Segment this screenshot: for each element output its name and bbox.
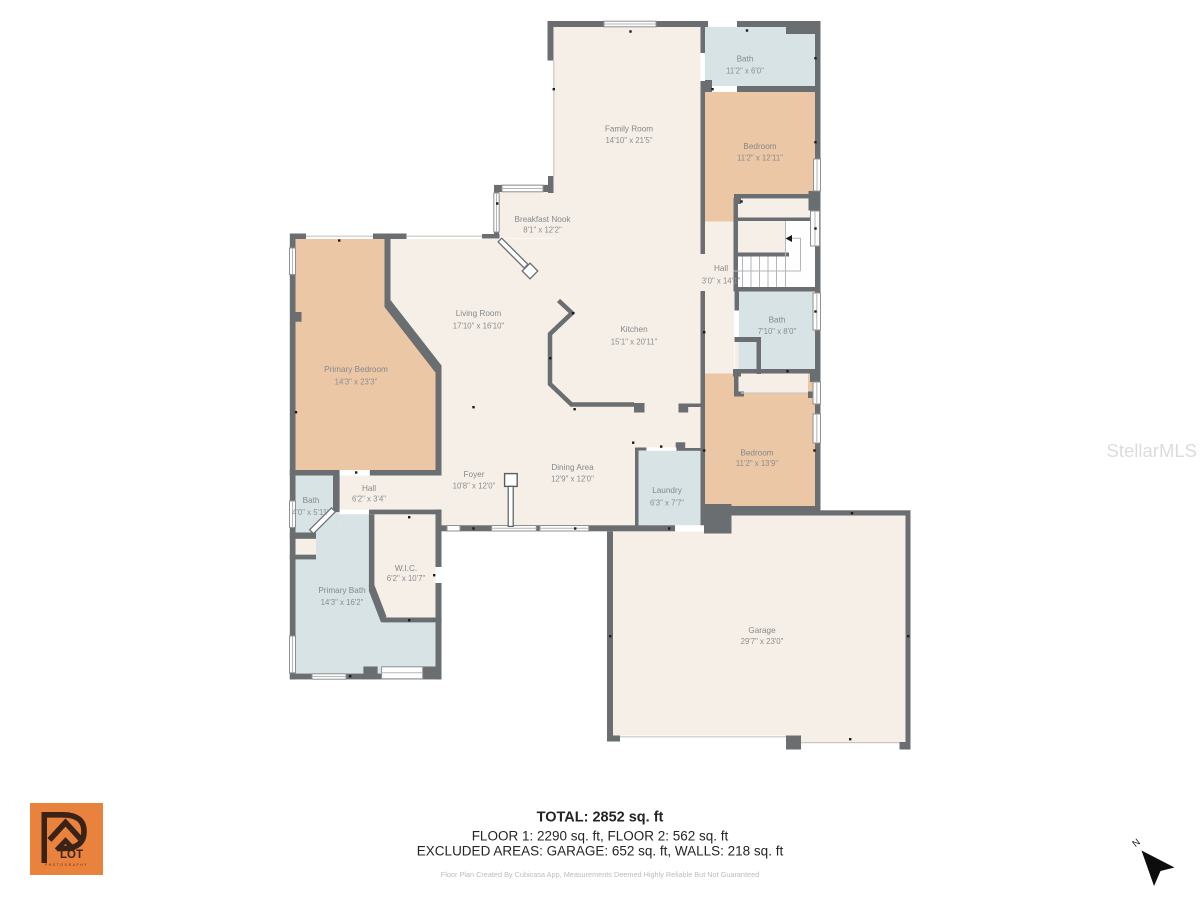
- svg-text:Family Room: Family Room: [605, 125, 653, 134]
- svg-text:Laundry: Laundry: [652, 486, 682, 495]
- svg-text:Primary Bedroom: Primary Bedroom: [324, 365, 388, 374]
- svg-text:29'7" x 23'0": 29'7" x 23'0": [741, 637, 784, 646]
- svg-text:7'10" x 8'0": 7'10" x 8'0": [758, 327, 797, 336]
- svg-text:StellarMLS: StellarMLS: [1107, 440, 1197, 461]
- svg-text:EXCLUDED AREAS: GARAGE: 652 sq: EXCLUDED AREAS: GARAGE: 652 sq. ft, WALL…: [417, 844, 784, 859]
- svg-text:6'3" x 7'7": 6'3" x 7'7": [650, 499, 684, 508]
- svg-text:6'2" x 10'7": 6'2" x 10'7": [387, 574, 426, 583]
- svg-text:6'2" x 3'4": 6'2" x 3'4": [352, 495, 386, 504]
- svg-text:10'8" x 12'0": 10'8" x 12'0": [453, 482, 496, 491]
- svg-text:Bath: Bath: [303, 496, 320, 505]
- svg-text:Bath: Bath: [737, 55, 754, 64]
- svg-text:17'10" x 16'10": 17'10" x 16'10": [453, 322, 505, 331]
- svg-text:Foyer: Foyer: [464, 470, 485, 479]
- svg-text:3'0" x 14'1": 3'0" x 14'1": [702, 277, 741, 286]
- svg-text:Dining Area: Dining Area: [551, 463, 594, 472]
- svg-text:11'2" x 6'0": 11'2" x 6'0": [726, 67, 764, 76]
- svg-text:Bath: Bath: [769, 316, 786, 325]
- svg-text:Hall: Hall: [714, 264, 728, 273]
- svg-text:11'2" x 12'11": 11'2" x 12'11": [737, 154, 783, 163]
- svg-text:Breakfast Nook: Breakfast Nook: [515, 215, 572, 224]
- svg-text:TOTAL: 2852 sq. ft: TOTAL: 2852 sq. ft: [537, 810, 664, 826]
- svg-text:Bedroom: Bedroom: [740, 449, 773, 458]
- svg-text:W.I.C.: W.I.C.: [395, 564, 417, 573]
- svg-text:14'10" x 21'5": 14'10" x 21'5": [605, 136, 652, 145]
- svg-text:Garage: Garage: [748, 626, 776, 635]
- svg-text:FLOOR 1: 2290 sq. ft, FLOOR 2:: FLOOR 1: 2290 sq. ft, FLOOR 2: 562 sq. f…: [472, 829, 729, 844]
- svg-text:Living Room: Living Room: [456, 309, 502, 318]
- svg-text:Floor Plan Created By Cubicasa: Floor Plan Created By Cubicasa App, Meas…: [441, 870, 759, 879]
- svg-text:8'1" x 12'2": 8'1" x 12'2": [523, 226, 562, 235]
- svg-text:15'1" x 20'11": 15'1" x 20'11": [611, 338, 658, 347]
- svg-text:LOT: LOT: [60, 849, 83, 861]
- svg-text:Primary Bath: Primary Bath: [318, 586, 366, 595]
- svg-text:Bedroom: Bedroom: [743, 142, 776, 151]
- svg-text:PHOTOGRAPHY: PHOTOGRAPHY: [45, 863, 88, 867]
- svg-text:4'0" x 5'11": 4'0" x 5'11": [292, 508, 330, 517]
- svg-text:12'9" x 12'0": 12'9" x 12'0": [551, 475, 594, 484]
- svg-text:Hall: Hall: [362, 484, 376, 493]
- svg-text:14'3" x 23'3": 14'3" x 23'3": [335, 378, 378, 387]
- svg-text:Kitchen: Kitchen: [620, 325, 648, 334]
- svg-text:11'2" x 13'9": 11'2" x 13'9": [736, 459, 778, 468]
- svg-text:14'3" x 16'2": 14'3" x 16'2": [321, 598, 364, 607]
